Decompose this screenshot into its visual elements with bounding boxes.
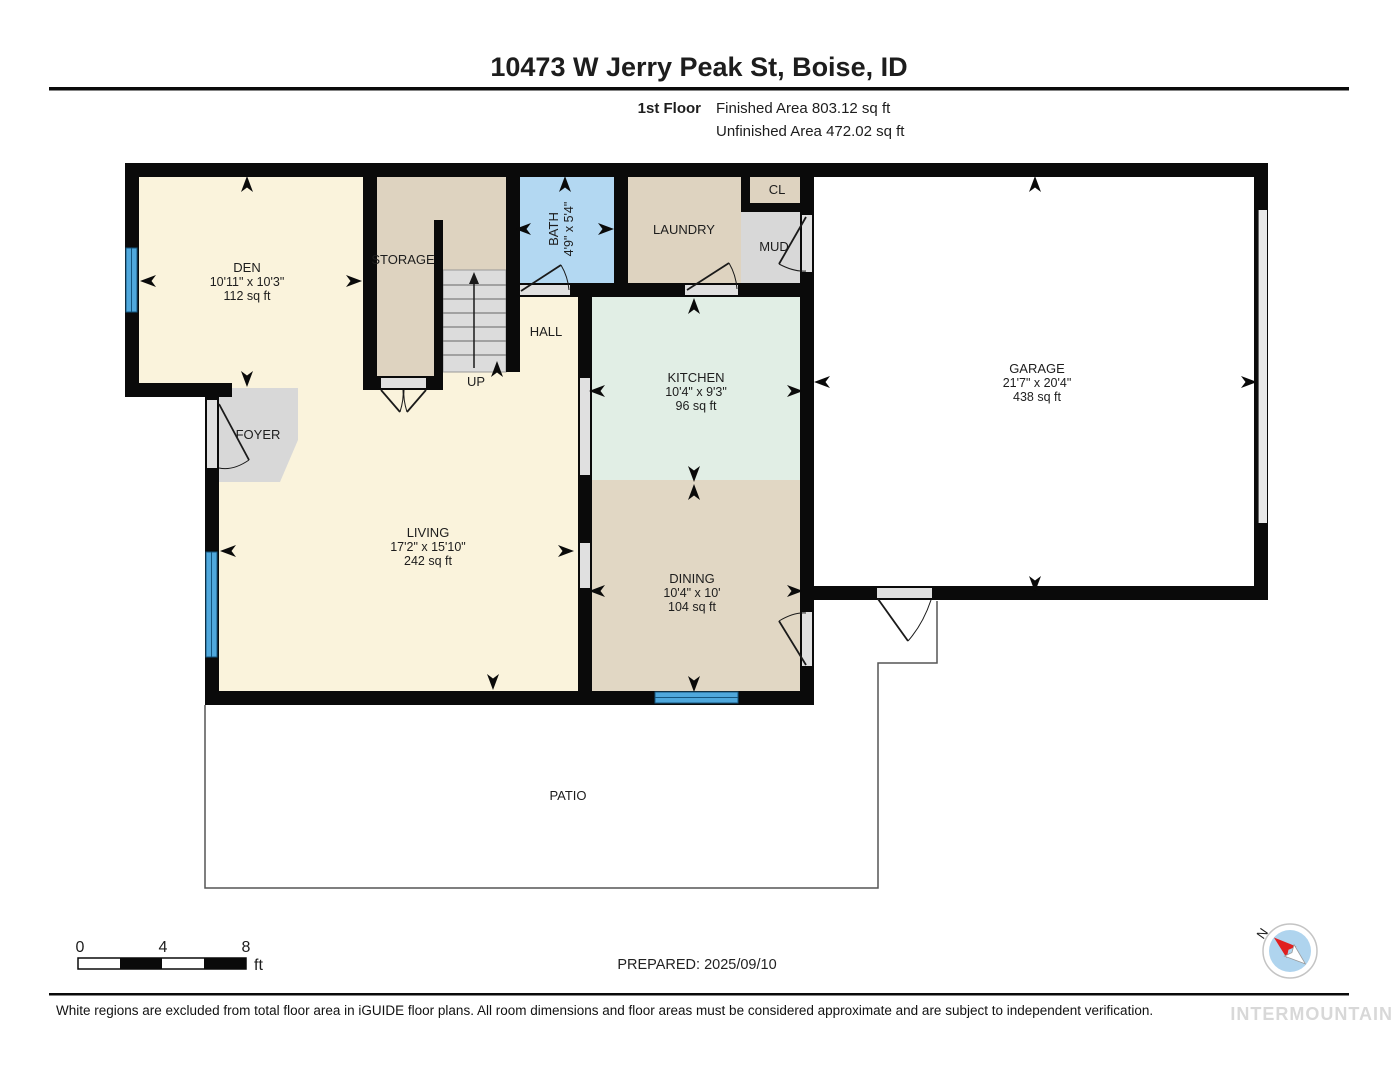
dining-area: 104 sq ft [668, 600, 716, 614]
opening-mud-garage [802, 215, 812, 272]
header-divider [49, 87, 1349, 91]
hall-label: HALL [530, 324, 563, 339]
wall-storage-left [363, 170, 377, 390]
disclaimer-text: White regions are excluded from total fl… [56, 1003, 1153, 1018]
opening-dining-patio [802, 612, 812, 666]
scale-bar-segment [204, 958, 246, 969]
up-label: UP [467, 374, 485, 389]
opening-entry [207, 400, 217, 468]
kitchen-dims: 10'4" x 9'3" [665, 385, 727, 399]
den-area: 112 sq ft [223, 289, 271, 303]
floor-label: 1st Floor [638, 100, 702, 117]
storage-label: STORAGE [371, 252, 435, 267]
scale-four: 4 [159, 939, 168, 956]
prepared-date: PREPARED: 2025/09/10 [617, 957, 776, 973]
closet-label: CL [769, 182, 786, 197]
garage-dims: 21'7" x 20'4" [1003, 376, 1072, 390]
wall-bath-right [614, 163, 628, 297]
wall-top [125, 163, 1268, 177]
bath-label: BATH [546, 212, 561, 246]
wall-closet-bottom [741, 203, 807, 212]
scale-zero: 0 [76, 939, 85, 956]
bath-dims: 4'9" x 5'4" [562, 202, 576, 257]
dining-label: DINING [669, 571, 715, 586]
scale-bar-segment [120, 958, 162, 969]
page-title: 10473 W Jerry Peak St, Boise, ID [490, 52, 907, 82]
foyer-label: FOYER [236, 427, 281, 442]
garage-label: GARAGE [1009, 361, 1065, 376]
finished-area: Finished Area 803.12 sq ft [716, 100, 891, 117]
opening-garage-mandoor [877, 588, 932, 598]
patio-label: PATIO [549, 788, 586, 803]
laundry-label: LAUNDRY [653, 222, 715, 237]
opening-living-dining [580, 543, 590, 588]
garage-door [1258, 210, 1267, 523]
dining-dims: 10'4" x 10' [663, 586, 720, 600]
opening-storage [381, 378, 426, 388]
floor-plan-page: 10473 W Jerry Peak St, Boise, ID 1st Flo… [0, 0, 1398, 1080]
living-label: LIVING [407, 525, 450, 540]
direction-arrow [1029, 176, 1041, 192]
wall-stairs [434, 220, 443, 378]
scale-eight: 8 [242, 939, 251, 956]
compass: N [1253, 924, 1317, 978]
living-area: 242 sq ft [404, 554, 452, 568]
floor-plan-canvas: 10473 W Jerry Peak St, Boise, ID 1st Flo… [0, 0, 1398, 1080]
kitchen-label: KITCHEN [667, 370, 724, 385]
unfinished-area: Unfinished Area 472.02 sq ft [716, 123, 905, 140]
footer-divider [49, 993, 1349, 996]
scale-unit: ft [254, 957, 263, 974]
den-dims: 10'11" x 10'3" [210, 275, 285, 289]
opening-living-kitchen [580, 378, 590, 475]
kitchen-area: 96 sq ft [676, 399, 718, 413]
garage-mandoor-leaf [878, 599, 908, 641]
wall-living-kitchen [578, 283, 592, 705]
room-fills [132, 170, 807, 698]
garage-mandoor-arc [908, 600, 931, 641]
living-dims: 17'2" x 15'10" [390, 540, 466, 554]
compass-face [1269, 930, 1311, 972]
mud-label: MUD [759, 239, 789, 254]
wall-bath-left [506, 170, 520, 372]
scale-bar: 0 4 8 ft [76, 939, 264, 974]
den-label: DEN [233, 260, 260, 275]
garage-area: 438 sq ft [1013, 390, 1061, 404]
brand-watermark: INTERMOUNTAIN [1230, 1004, 1393, 1024]
direction-arrow [814, 376, 830, 388]
